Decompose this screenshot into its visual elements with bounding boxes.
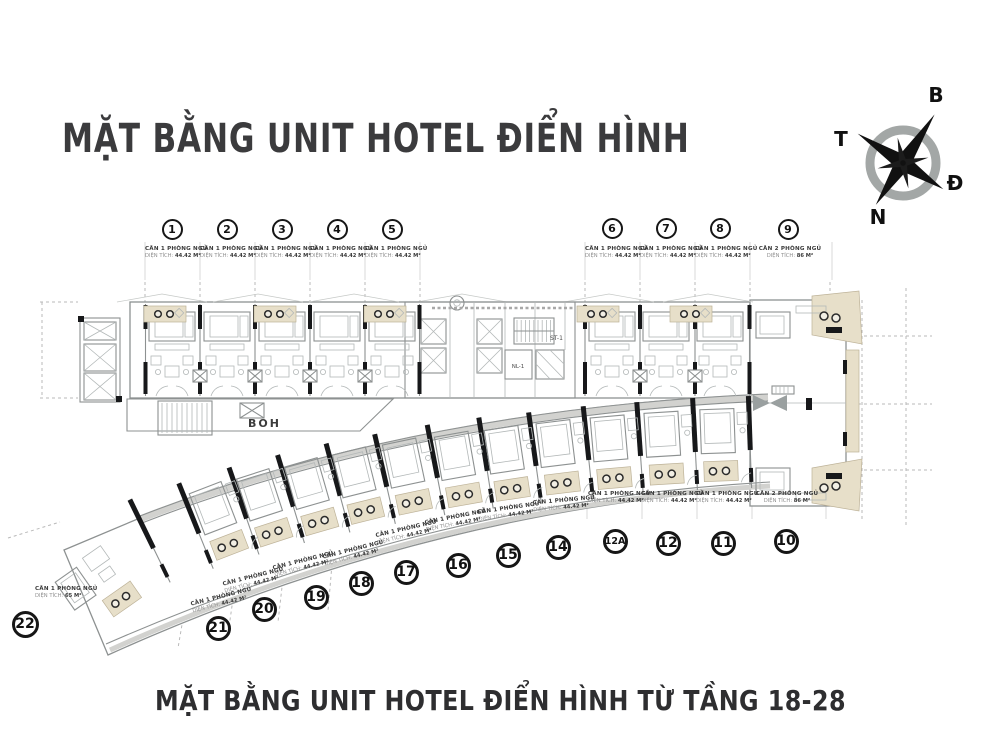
unit-marker-22: 22	[12, 611, 39, 638]
unit-area: DIỆN TÍCH: 44.42 M²	[255, 253, 309, 261]
unit-marker-18: 18	[349, 571, 374, 596]
compass-west-label: T	[834, 127, 848, 151]
unit-marker-19: 19	[304, 585, 329, 610]
unit-marker-21: 21	[206, 616, 231, 641]
unit-area: DIỆN TÍCH: 44.42 M²	[640, 253, 694, 261]
unit-marker-20: 20	[252, 597, 277, 622]
unit-label-22: CĂN 1 PHÒNG NGỦDIỆN TÍCH: 65 M²	[35, 585, 99, 601]
unit-type: CĂN 1 PHÒNG NGỦ	[255, 245, 309, 253]
unit-marker-11: 11	[711, 531, 736, 556]
compass-south-label: N	[870, 205, 887, 229]
unit-marker-10: 10	[774, 529, 799, 554]
stair-label: ST-1	[550, 335, 563, 342]
unit-area: DIỆN TÍCH: 86 M²	[748, 498, 826, 506]
unit-marker-2: 2	[217, 219, 238, 240]
unit-area: DIỆN TÍCH: 65 M²	[35, 593, 99, 601]
unit-marker-5: 5	[382, 219, 403, 240]
unit-marker-1: 1	[162, 219, 183, 240]
unit-area: DIỆN TÍCH: 44.42 M²	[585, 253, 639, 261]
unit-marker-4: 4	[327, 219, 348, 240]
unit-area: DIỆN TÍCH: 44.42 M²	[696, 498, 750, 506]
unit-area: DIỆN TÍCH: 86 M²	[750, 253, 830, 261]
unit-type: CĂN 1 PHÒNG NGỦ	[695, 245, 749, 253]
boh-label: BOH	[248, 417, 281, 430]
unit-area: DIỆN TÍCH: 44.42 M²	[145, 253, 199, 261]
unit-type: CĂN 1 PHÒNG NGỦ	[310, 245, 364, 253]
unit-label-10: CĂN 2 PHÒNG NGỦDIỆN TÍCH: 86 M²	[748, 490, 826, 506]
unit-type: CĂN 2 PHÒNG NGỦ	[748, 490, 826, 498]
unit-label-5: CĂN 1 PHÒNG NGỦDIỆN TÍCH: 44.42 M²	[365, 245, 419, 261]
unit-type: CĂN 1 PHÒNG NGỦ	[200, 245, 254, 253]
unit-type: CĂN 2 PHÒNG NGỦ	[750, 245, 830, 253]
unit-label-11: CĂN 1 PHÒNG NGỦDIỆN TÍCH: 44.42 M²	[696, 490, 750, 506]
unit-marker-7: 7	[656, 218, 677, 239]
unit-label-9: CĂN 2 PHÒNG NGỦDIỆN TÍCH: 86 M²	[750, 245, 830, 261]
unit-type: CĂN 1 PHÒNG NGỦ	[588, 490, 642, 498]
unit-area: DIỆN TÍCH: 44.42 M²	[310, 253, 364, 261]
unit-marker-12: 12	[656, 531, 681, 556]
unit-type: CĂN 1 PHÒNG NGỦ	[365, 245, 419, 253]
unit-area: DIỆN TÍCH: 44.42 M²	[588, 498, 642, 506]
unit-marker-12A: 12A	[603, 529, 628, 554]
unit-marker-15: 15	[496, 543, 521, 568]
floor-plan-page: MẶT BẰNG UNIT HOTEL ĐIỂN HÌNH	[0, 0, 1000, 746]
roof-zigzag	[117, 294, 753, 302]
unit-label-6: CĂN 1 PHÒNG NGỦDIỆN TÍCH: 44.42 M²	[585, 245, 639, 261]
unit-type: CĂN 1 PHÒNG NGỦ	[35, 585, 99, 593]
unit-label-2: CĂN 1 PHÒNG NGỦDIỆN TÍCH: 44.42 M²	[200, 245, 254, 261]
compass-east-label: Đ	[947, 171, 964, 195]
unit-type: CĂN 1 PHÒNG NGỦ	[585, 245, 639, 253]
unit-area: DIỆN TÍCH: 44.42 M²	[695, 253, 749, 261]
unit-type: CĂN 1 PHÒNG NGỦ	[145, 245, 199, 253]
elevator-core-left	[78, 316, 122, 402]
compass-north-label: B	[928, 83, 943, 107]
unit-label-1: CĂN 1 PHÒNG NGỦDIỆN TÍCH: 44.42 M²	[145, 245, 199, 261]
unit-area: DIỆN TÍCH: 44.42 M²	[200, 253, 254, 261]
unit-label-3: CĂN 1 PHÒNG NGỦDIỆN TÍCH: 44.42 M²	[255, 245, 309, 261]
compass-rose: B T Đ N	[834, 83, 963, 229]
unit-marker-14: 14	[546, 535, 571, 560]
unit-label-12A: CĂN 1 PHÒNG NGỦDIỆN TÍCH: 44.42 M²	[588, 490, 642, 506]
unit-marker-17: 17	[394, 560, 419, 585]
unit-marker-6: 6	[602, 218, 623, 239]
unit-marker-3: 3	[272, 219, 293, 240]
unit-label-8: CĂN 1 PHÒNG NGỦDIỆN TÍCH: 44.42 M²	[695, 245, 749, 261]
unit-type: CĂN 1 PHÒNG NGỦ	[640, 245, 694, 253]
lift-lobby-label: NL-1	[512, 364, 525, 370]
unit-type: CĂN 1 PHÒNG NGỦ	[696, 490, 750, 498]
unit-area: DIỆN TÍCH: 44.42 M²	[365, 253, 419, 261]
unit-label-4: CĂN 1 PHÒNG NGỦDIỆN TÍCH: 44.42 M²	[310, 245, 364, 261]
unit-label-7: CĂN 1 PHÒNG NGỦDIỆN TÍCH: 44.42 M²	[640, 245, 694, 261]
unit-marker-9: 9	[778, 219, 799, 240]
unit-marker-8: 8	[710, 218, 731, 239]
floor-plan-drawing: BOH ST-1 NL-1 B T Đ N	[0, 0, 1000, 746]
unit-marker-16: 16	[446, 553, 471, 578]
unit-area: DIỆN TÍCH: 44.42 M²	[641, 498, 695, 506]
